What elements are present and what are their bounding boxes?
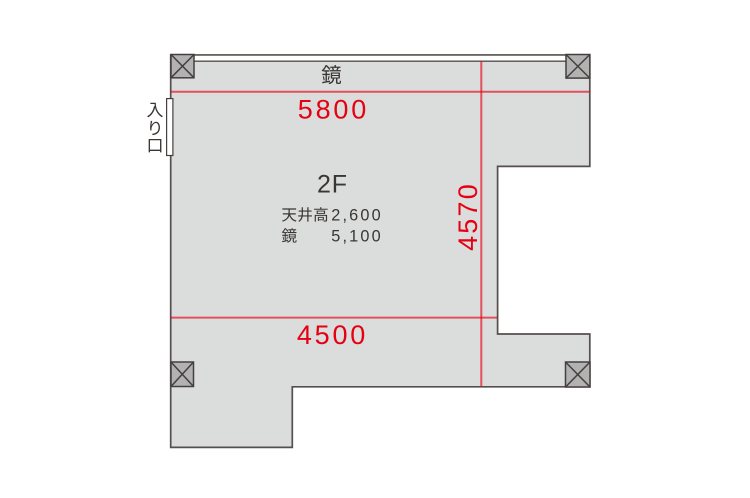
svg-text:4500: 4500 bbox=[297, 320, 368, 350]
svg-text:4570: 4570 bbox=[453, 182, 483, 251]
svg-text:5,100: 5,100 bbox=[331, 227, 383, 245]
svg-text:2,600: 2,600 bbox=[331, 206, 383, 224]
svg-text:2F: 2F bbox=[317, 170, 348, 198]
svg-text:5800: 5800 bbox=[298, 95, 369, 125]
